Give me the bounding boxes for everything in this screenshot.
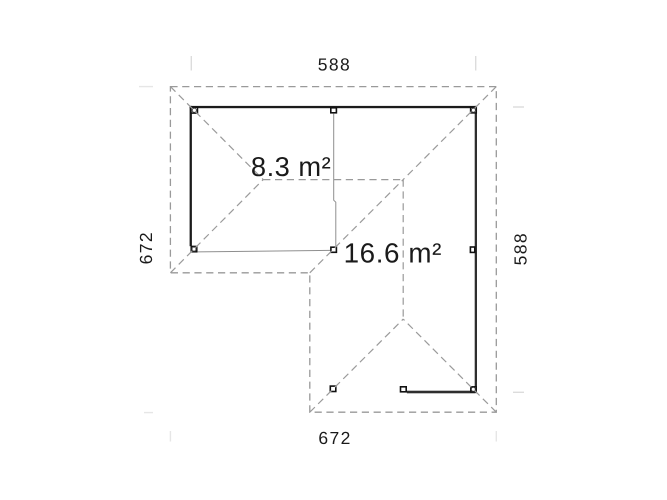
svg-text:672: 672 <box>136 231 156 264</box>
svg-text:16.6 m²: 16.6 m² <box>344 238 442 269</box>
svg-text:588: 588 <box>511 232 531 265</box>
svg-text:672: 672 <box>318 428 351 448</box>
svg-text:8.3 m²: 8.3 m² <box>251 151 331 182</box>
svg-text:588: 588 <box>318 55 351 75</box>
